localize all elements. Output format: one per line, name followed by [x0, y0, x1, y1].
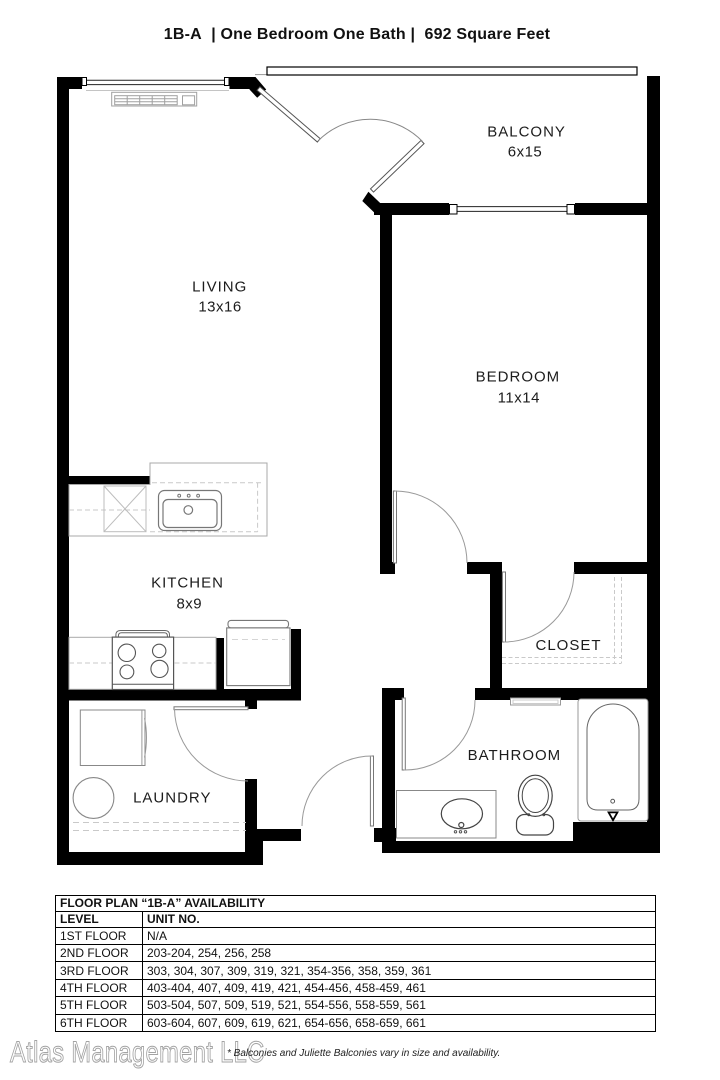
svg-text:LIVING: LIVING — [192, 279, 247, 296]
svg-text:LAUNDRY: LAUNDRY — [133, 790, 211, 807]
svg-text:13x16: 13x16 — [198, 299, 241, 316]
svg-text:BATHROOM: BATHROOM — [468, 747, 562, 764]
svg-text:11x14: 11x14 — [498, 389, 540, 406]
svg-text:BALCONY: BALCONY — [487, 124, 566, 141]
svg-text:8x9: 8x9 — [176, 596, 202, 613]
svg-text:CLOSET: CLOSET — [535, 637, 601, 654]
svg-text:6x15: 6x15 — [508, 144, 543, 161]
svg-text:BEDROOM: BEDROOM — [476, 369, 561, 386]
svg-text:KITCHEN: KITCHEN — [151, 575, 224, 592]
